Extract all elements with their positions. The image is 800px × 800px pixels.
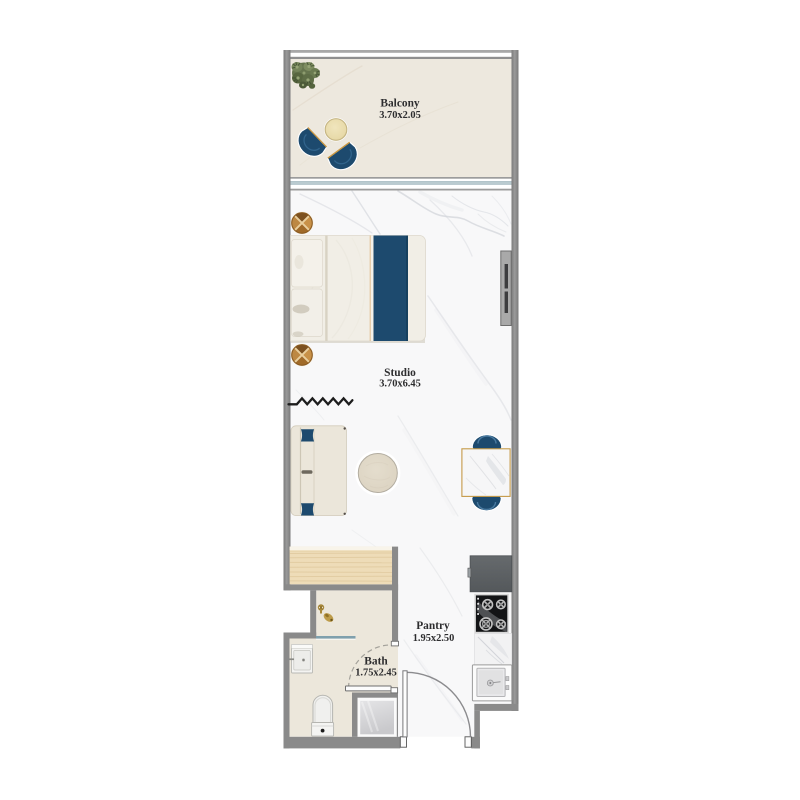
svg-text:Bath: Bath [364, 656, 388, 668]
svg-text:1.95x2.50: 1.95x2.50 [413, 633, 455, 644]
svg-text:Pantry: Pantry [416, 620, 450, 632]
svg-text:Balcony: Balcony [380, 97, 420, 109]
svg-text:1.75x2.45: 1.75x2.45 [355, 668, 397, 679]
svg-text:3.70x2.05: 3.70x2.05 [379, 110, 421, 121]
svg-text:3.70x6.45: 3.70x6.45 [379, 378, 421, 389]
svg-text:Studio: Studio [384, 367, 416, 379]
